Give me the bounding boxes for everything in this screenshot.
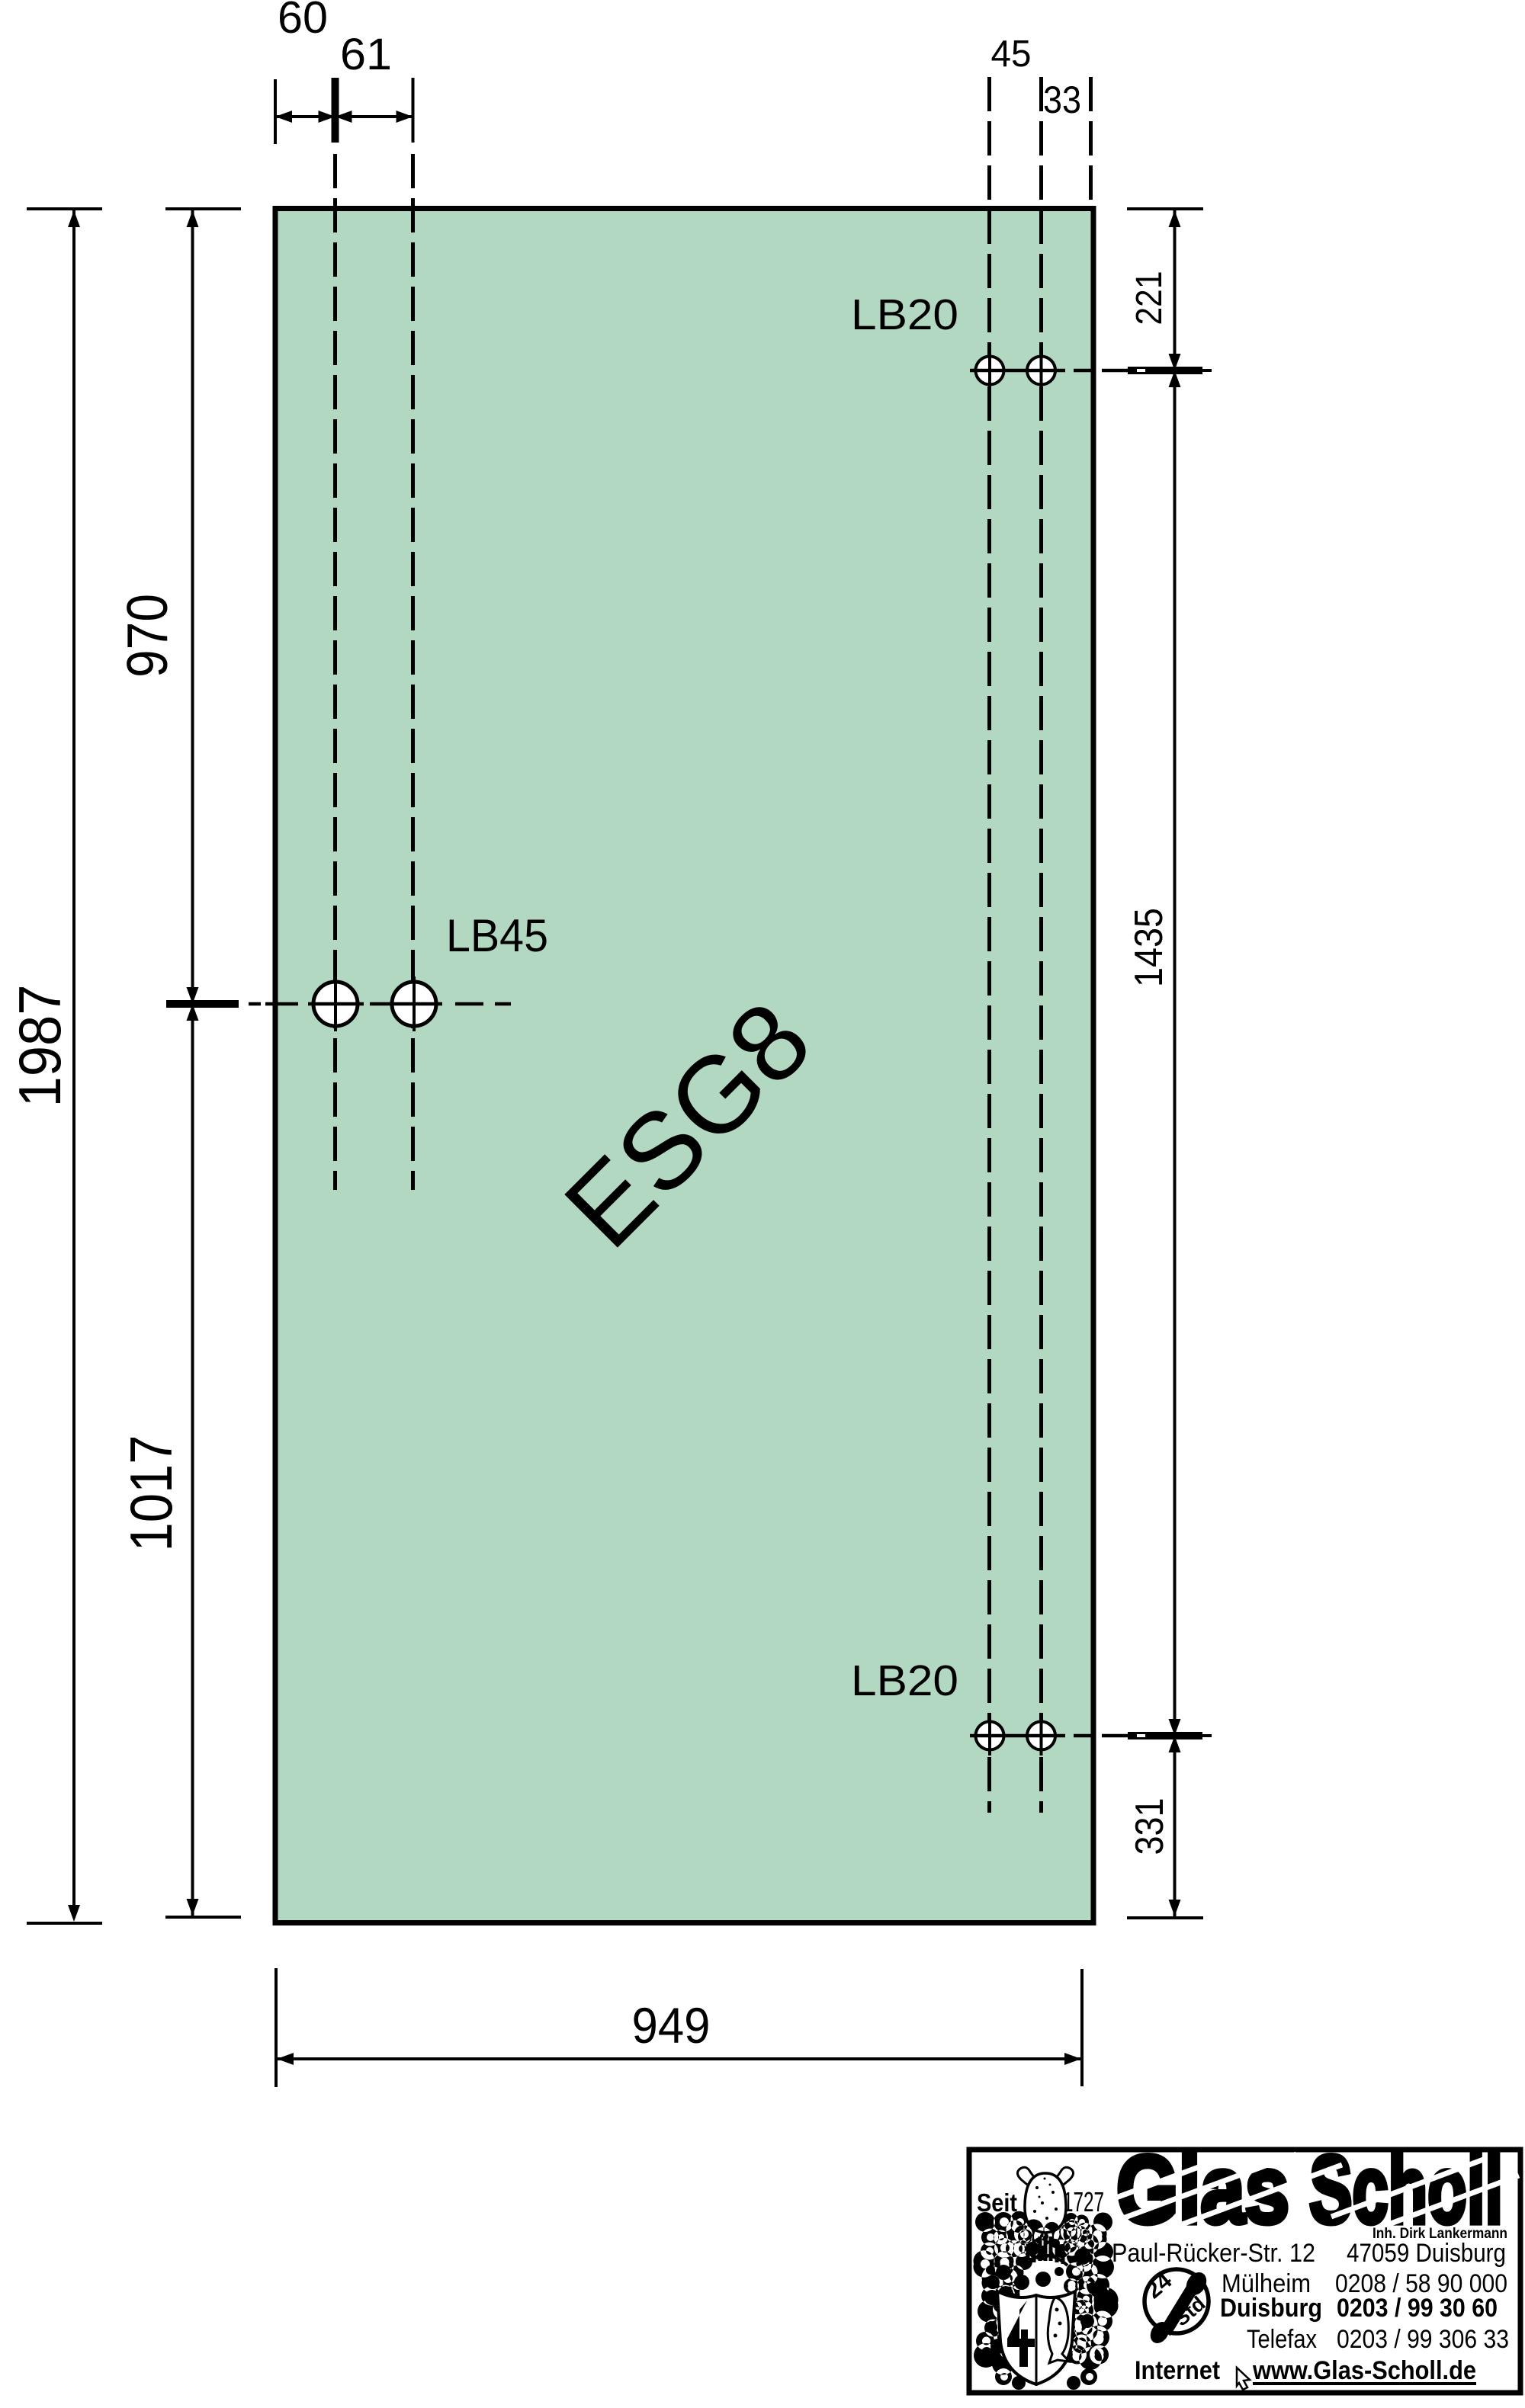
svg-text:60: 60 xyxy=(278,0,328,43)
svg-text:1727: 1727 xyxy=(1063,2186,1104,2217)
svg-text:LB45: LB45 xyxy=(446,910,548,961)
svg-text:221: 221 xyxy=(1129,271,1170,325)
svg-text:47059 Duisburg: 47059 Duisburg xyxy=(1347,2239,1506,2268)
svg-text:LB20: LB20 xyxy=(851,290,958,339)
svg-text:Duisburg: Duisburg xyxy=(1220,2294,1322,2323)
svg-text:970: 970 xyxy=(115,594,179,678)
svg-text:Telefax: Telefax xyxy=(1247,2325,1317,2354)
svg-text:33: 33 xyxy=(1043,79,1081,121)
svg-text:0203 / 99 306 33: 0203 / 99 306 33 xyxy=(1337,2325,1509,2354)
svg-text:1017: 1017 xyxy=(117,1435,185,1552)
svg-text:0203 / 99 30 60: 0203 / 99 30 60 xyxy=(1337,2294,1498,2323)
svg-text:61: 61 xyxy=(340,30,392,79)
svg-text:LB20: LB20 xyxy=(851,1656,958,1705)
svg-text:331: 331 xyxy=(1128,1798,1172,1855)
svg-text:949: 949 xyxy=(632,1997,711,2054)
svg-text:1987: 1987 xyxy=(6,985,73,1108)
svg-text:1435: 1435 xyxy=(1127,908,1171,987)
svg-text:45: 45 xyxy=(991,34,1032,75)
svg-text:Paul-Rücker-Str. 12: Paul-Rücker-Str. 12 xyxy=(1112,2239,1315,2268)
svg-text:www.Glas-Scholl.de: www.Glas-Scholl.de xyxy=(1252,2356,1476,2385)
svg-text:Internet: Internet xyxy=(1135,2356,1220,2385)
